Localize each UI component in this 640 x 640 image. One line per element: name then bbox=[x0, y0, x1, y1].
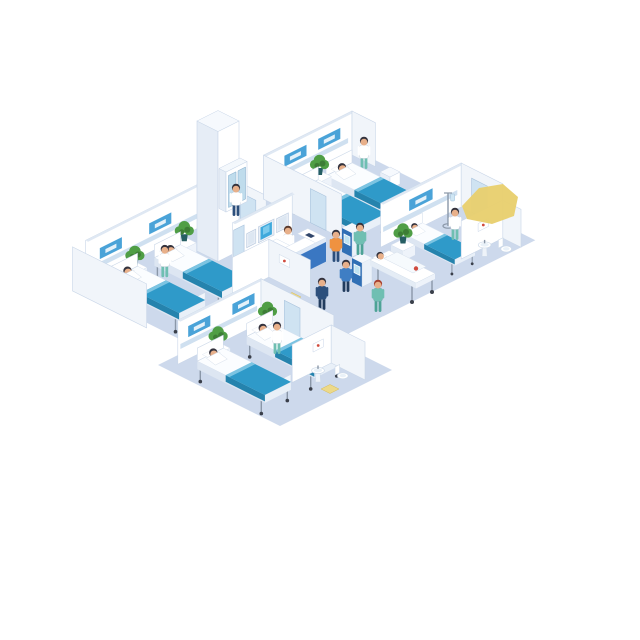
hospital-illustration: P&N bbox=[0, 0, 640, 640]
medical-cross-dot bbox=[482, 224, 485, 227]
elevator-column-left-face bbox=[197, 121, 218, 262]
medical-cross-dot bbox=[317, 344, 320, 347]
medical-cross-dot bbox=[283, 260, 286, 263]
checkin-kiosk bbox=[352, 253, 372, 287]
